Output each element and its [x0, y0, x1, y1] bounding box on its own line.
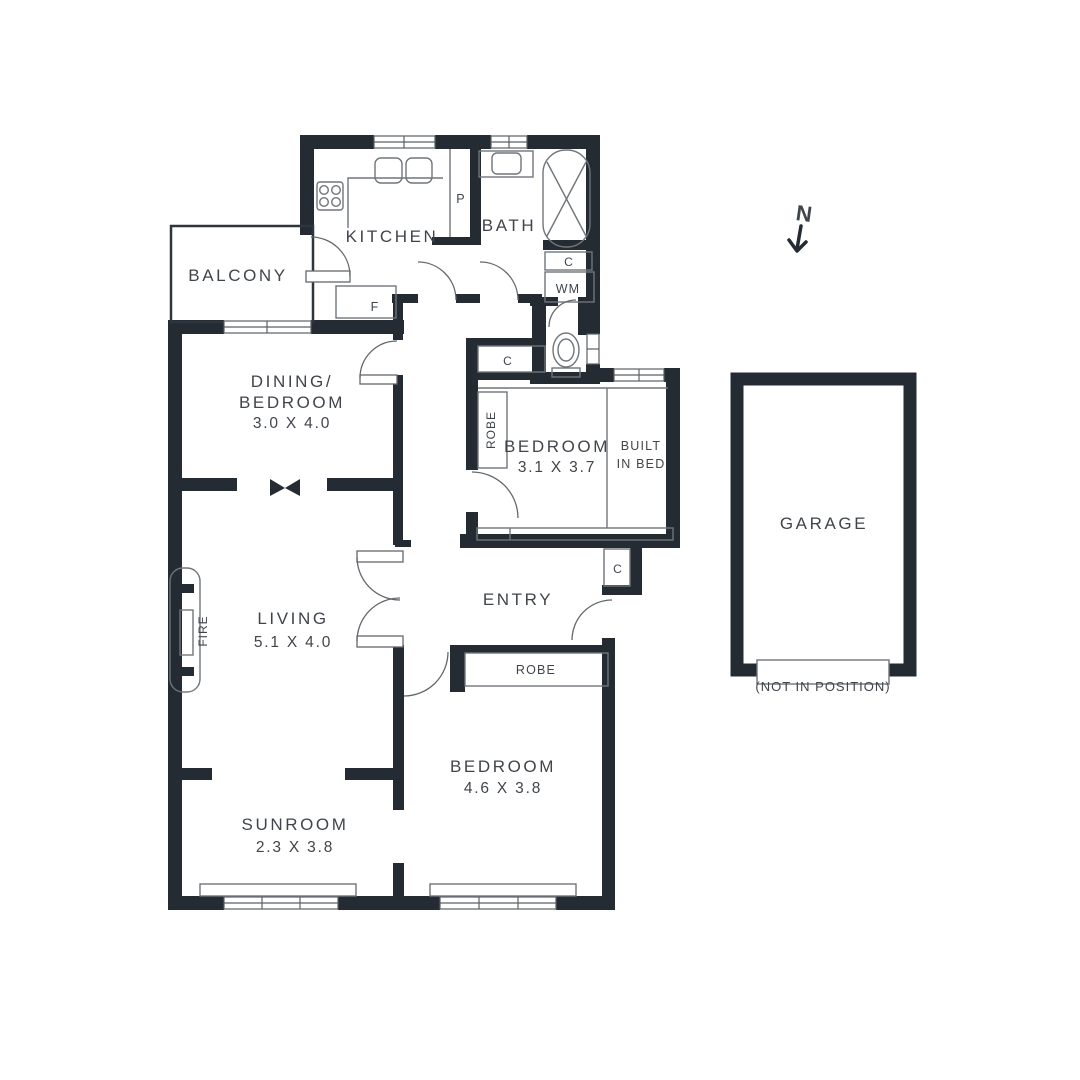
- toilet-icon: [479, 151, 533, 177]
- sink-icon: [375, 158, 402, 183]
- bathtub-icon: [543, 150, 590, 247]
- sunroom-window: [224, 897, 338, 909]
- label-cupboard-laundry: C: [564, 255, 574, 269]
- label-kitchen: KITCHEN: [346, 227, 439, 246]
- dining-window: [224, 321, 311, 333]
- label-fireplace: FIRE: [196, 615, 210, 646]
- bedroom4-window: [440, 897, 556, 909]
- label-pantry: P: [456, 192, 466, 206]
- bedroom3-window: [614, 369, 664, 381]
- dining-door: [360, 341, 397, 384]
- labels: BALCONY KITCHEN BATH P C WM F DINING/ BE…: [188, 192, 890, 856]
- label-cupboard-hall: C: [503, 354, 513, 368]
- wc-window: [587, 334, 599, 364]
- label-built-in-bed-line2: IN BED: [617, 457, 666, 471]
- stove-icon: [317, 182, 343, 210]
- label-dining-line1: DINING/: [251, 372, 333, 391]
- counter-line: [348, 178, 443, 228]
- label-bedroom3: BEDROOM: [504, 437, 610, 456]
- label-garage: GARAGE: [780, 514, 868, 533]
- north-arrow-icon: N: [789, 200, 814, 251]
- bedroom4-sill: [430, 884, 576, 896]
- label-dining-dims: 3.0 X 4.0: [253, 415, 331, 432]
- label-robe-entry: ROBE: [516, 663, 556, 677]
- floor-plan-svg: N BALCONY KITCHEN BATH P C WM F DINING/ …: [0, 0, 1080, 1080]
- label-bedroom4-dims: 4.6 X 3.8: [464, 780, 542, 797]
- label-washing-machine: WM: [556, 282, 581, 296]
- label-built-in-bed-line1: BUILT: [621, 439, 662, 453]
- fridge-space: [336, 286, 396, 318]
- sunroom-sill: [200, 884, 356, 896]
- label-cupboard-entry: C: [613, 562, 623, 576]
- north-label: N: [794, 200, 813, 227]
- label-sunroom: SUNROOM: [242, 815, 349, 834]
- kitchen-window: [374, 136, 435, 148]
- label-entry: ENTRY: [483, 590, 553, 609]
- label-balcony: BALCONY: [188, 266, 287, 285]
- label-fridge: F: [371, 300, 380, 314]
- label-robe-bedroom3: ROBE: [484, 411, 498, 449]
- label-sunroom-dims: 2.3 X 3.8: [256, 839, 334, 856]
- bath-door: [480, 262, 518, 300]
- living-double-doors: [357, 551, 403, 647]
- wc-toilet-icon: [552, 333, 580, 377]
- walls: [168, 135, 680, 910]
- label-living-dims: 5.1 X 4.0: [254, 634, 332, 651]
- bedroom3-door: [472, 472, 518, 518]
- label-dining-line2: BEDROOM: [239, 393, 345, 412]
- bedroom4-door: [404, 652, 448, 696]
- kitchen-door: [418, 262, 456, 300]
- label-living: LIVING: [257, 609, 328, 628]
- label-bath: BATH: [482, 216, 536, 235]
- front-door: [572, 600, 612, 640]
- floor-plan: N BALCONY KITCHEN BATH P C WM F DINING/ …: [0, 0, 1080, 1080]
- bath-window: [491, 136, 527, 148]
- label-garage-note: (NOT IN POSITION): [755, 679, 890, 694]
- label-bedroom3-dims: 3.1 X 3.7: [518, 459, 596, 476]
- label-bedroom4: BEDROOM: [450, 757, 556, 776]
